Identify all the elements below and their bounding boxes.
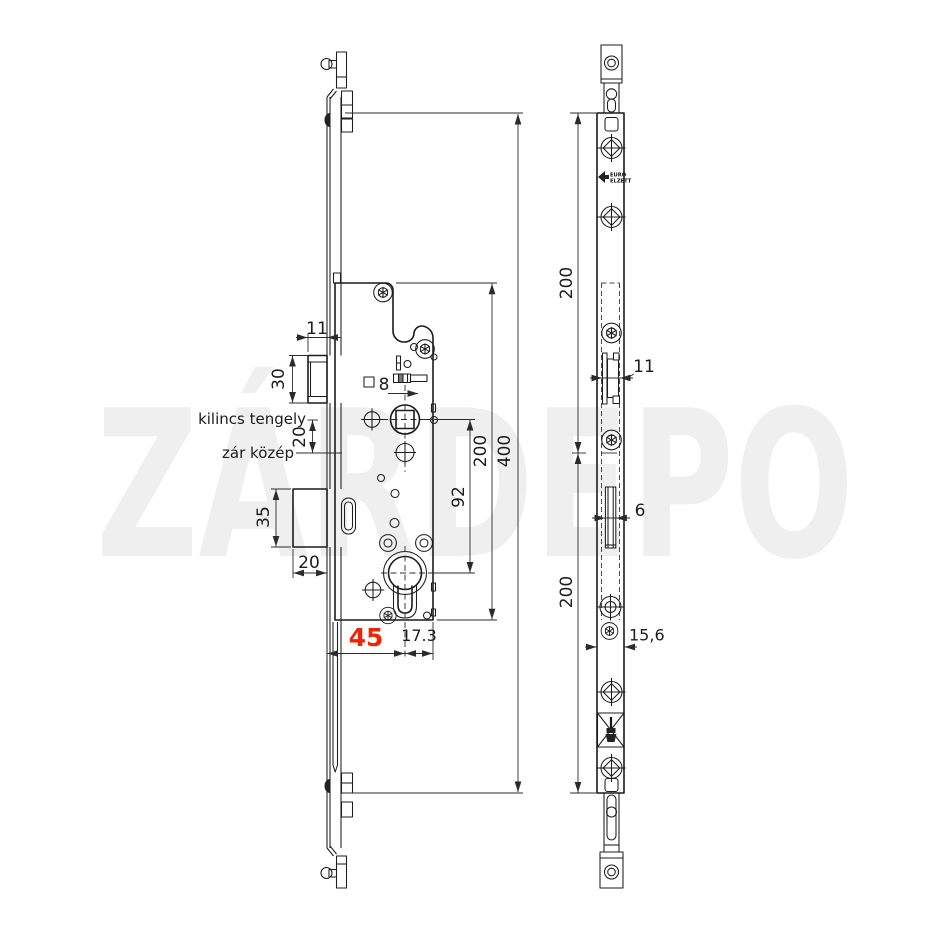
technical-drawing-page: ZÁRDEPO bbox=[0, 0, 931, 932]
top-cam-bump bbox=[325, 113, 331, 127]
euro-elzett-logo: EURO ELZETT bbox=[598, 171, 632, 185]
bottom-mounting-tab bbox=[321, 622, 353, 888]
top-mounting-tab bbox=[321, 52, 353, 132]
svg-text:11: 11 bbox=[306, 319, 328, 339]
svg-text:200: 200 bbox=[471, 435, 491, 467]
svg-text:6: 6 bbox=[635, 501, 646, 521]
diamond-screw-icon bbox=[598, 134, 626, 162]
svg-text:zár közép: zár közép bbox=[222, 444, 294, 462]
dim-backset: 45 17.3 bbox=[327, 600, 437, 660]
bottom-cam-bump bbox=[325, 779, 331, 793]
svg-text:17.3: 17.3 bbox=[401, 626, 437, 645]
diamond-screw-icon bbox=[598, 203, 626, 231]
svg-text:11: 11 bbox=[633, 357, 655, 377]
top-extension bbox=[601, 45, 622, 113]
watermark-text: ZÁRDEPO bbox=[96, 367, 854, 605]
svg-text:ELZETT: ELZETT bbox=[610, 179, 632, 185]
torx-screw-icon bbox=[602, 323, 622, 343]
torx-screw-icon bbox=[380, 607, 396, 623]
bolt-front bbox=[605, 487, 615, 548]
rivet-hole bbox=[605, 56, 619, 70]
drive-rod bbox=[333, 622, 338, 772]
bottom-extension bbox=[600, 793, 623, 888]
svg-text:8: 8 bbox=[379, 375, 390, 395]
svg-text:30: 30 bbox=[269, 368, 289, 390]
adjustment-port bbox=[605, 118, 618, 132]
svg-text:92: 92 bbox=[449, 486, 469, 508]
mushroom-cam-icon bbox=[321, 59, 337, 70]
svg-text:15,6: 15,6 bbox=[629, 626, 665, 645]
mushroom-cam-icon bbox=[606, 89, 616, 99]
torx-screw-icon bbox=[374, 283, 393, 302]
diamond-screw-icon bbox=[598, 754, 626, 782]
svg-text:45: 45 bbox=[349, 623, 384, 652]
rivet-hole bbox=[605, 865, 619, 879]
no-paint-icon bbox=[598, 713, 625, 747]
svg-text:20: 20 bbox=[298, 553, 320, 573]
mushroom-cam-icon bbox=[607, 807, 617, 817]
torx-screw-icon bbox=[416, 340, 435, 359]
svg-text:20: 20 bbox=[290, 426, 310, 448]
svg-text:200: 200 bbox=[557, 576, 577, 608]
latch-front bbox=[603, 353, 620, 404]
svg-text:400: 400 bbox=[495, 435, 515, 467]
diamond-screw-icon bbox=[598, 678, 626, 706]
svg-text:200: 200 bbox=[557, 267, 577, 299]
svg-text:kilincs tengely: kilincs tengely bbox=[198, 410, 306, 428]
lock-drawing-svg: ZÁRDEPO bbox=[0, 0, 931, 932]
torx-screw-icon bbox=[601, 623, 618, 640]
svg-text:35: 35 bbox=[254, 506, 274, 528]
mushroom-cam-icon bbox=[321, 868, 337, 879]
